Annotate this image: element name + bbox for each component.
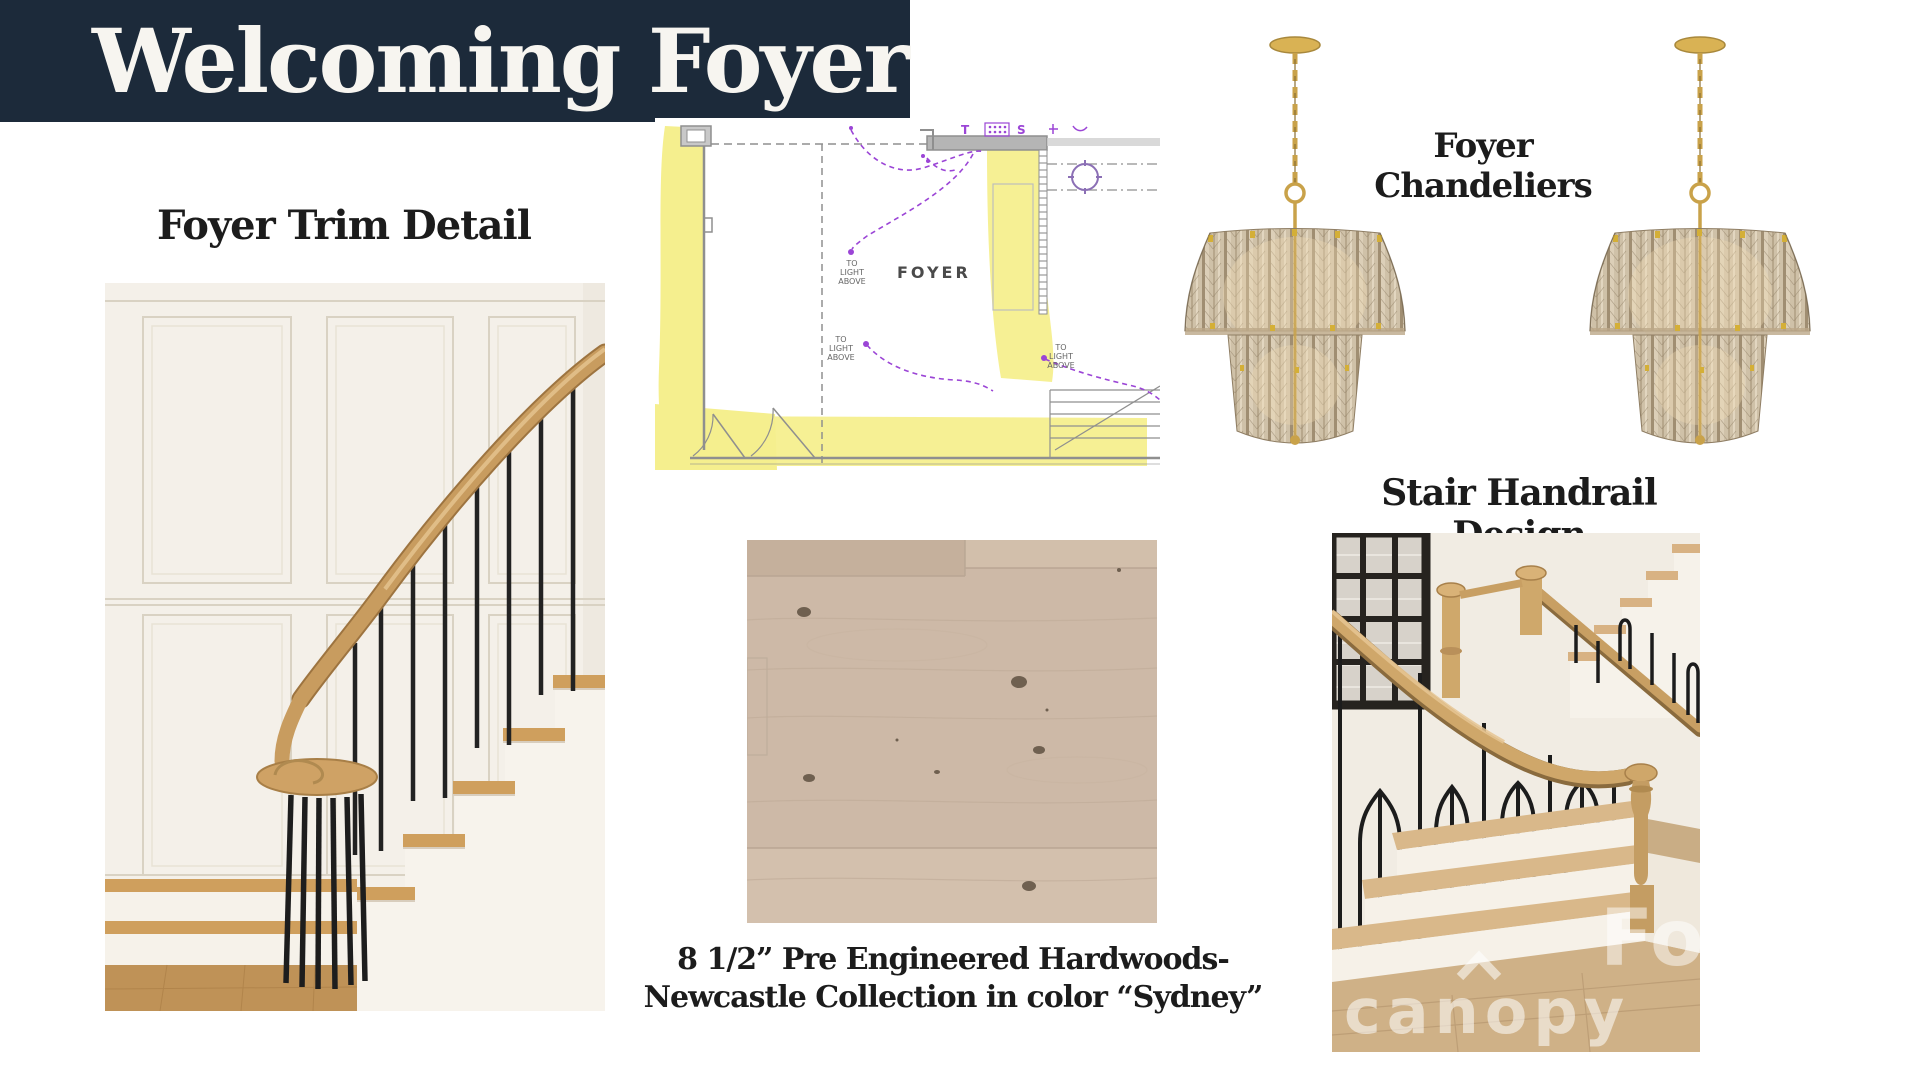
- foyer-trim-photo-art: [105, 283, 605, 1011]
- svg-text:ABOVE: ABOVE: [827, 353, 855, 362]
- chandelier-right-image: [1590, 37, 1810, 445]
- foyer-trim-photo: [105, 283, 605, 1011]
- flooring-caption-line2: Newcastle Collection in color “Sydney”: [603, 979, 1303, 1017]
- foyer-floor-plan: T S FOYER TO LIGHT ABOVE TO: [655, 118, 1160, 470]
- svg-text:LIGHT: LIGHT: [829, 344, 853, 353]
- stair-handrail-photo: Fo canopy: [1332, 533, 1700, 1052]
- svg-text:TO: TO: [834, 335, 846, 344]
- floor-plan-art: T S FOYER TO LIGHT ABOVE TO: [655, 118, 1160, 470]
- svg-text:ABOVE: ABOVE: [1047, 361, 1075, 370]
- flooring-caption-line1: 8 1/2” Pre Engineered Hardwoods-: [603, 941, 1303, 979]
- svg-text:LIGHT: LIGHT: [840, 268, 864, 277]
- title-banner: Welcoming Foyer: [0, 0, 910, 122]
- watermark-text: canopy: [1344, 975, 1630, 1048]
- hardwood-sample-image: [747, 540, 1157, 923]
- watermark-logo: Fo: [1600, 894, 1700, 984]
- stair-handrail-photo-art: Fo canopy: [1332, 533, 1700, 1052]
- svg-text:TO: TO: [845, 259, 857, 268]
- switch-t-symbol: T: [961, 123, 970, 137]
- mood-board: Welcoming Foyer Foyer Trim Detail Foyer …: [0, 0, 1920, 1080]
- chandelier-art: [1180, 35, 1840, 475]
- hardwood-sample-art: [747, 540, 1157, 923]
- heading-foyer-trim-detail: Foyer Trim Detail: [144, 202, 544, 249]
- svg-text:ABOVE: ABOVE: [838, 277, 866, 286]
- switch-s-symbol: S: [1017, 123, 1026, 137]
- chandelier-left-image: [1185, 37, 1405, 445]
- flooring-caption: 8 1/2” Pre Engineered Hardwoods- Newcast…: [603, 941, 1303, 1016]
- foyer-chandeliers-images: [1180, 35, 1840, 475]
- page-title: Welcoming Foyer: [92, 9, 908, 113]
- svg-text:LIGHT: LIGHT: [1049, 352, 1073, 361]
- room-label: FOYER: [897, 263, 971, 282]
- svg-text:TO: TO: [1054, 343, 1066, 352]
